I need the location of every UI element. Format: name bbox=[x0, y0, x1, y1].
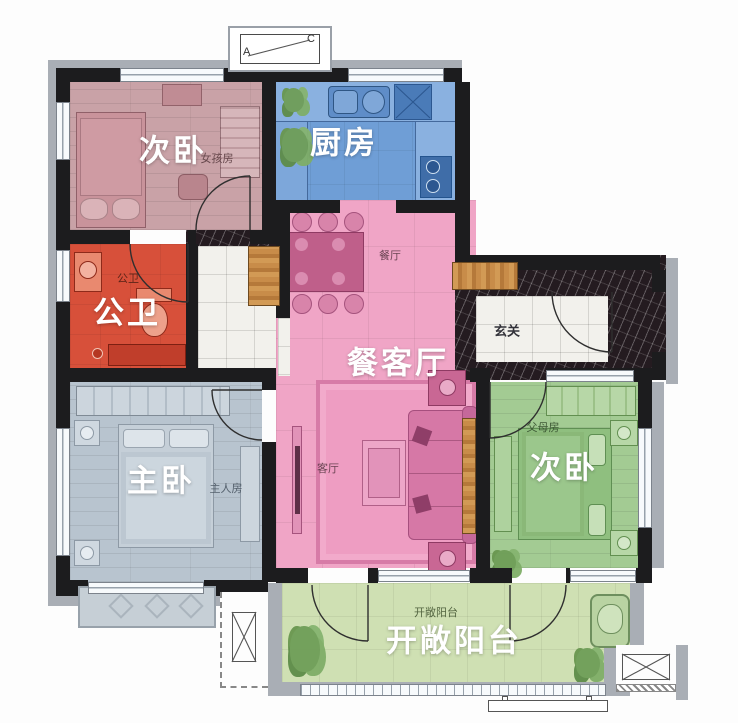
wall bbox=[56, 368, 276, 382]
bed-topleft-duvet bbox=[80, 118, 142, 196]
trim bbox=[268, 583, 282, 696]
dining-chair bbox=[292, 212, 312, 232]
tag-balcony: 开敞阳台 bbox=[414, 604, 458, 620]
nightstand-lamp bbox=[617, 536, 631, 550]
window bbox=[638, 428, 652, 528]
label-kitchen: 厨房 bbox=[310, 118, 378, 163]
balcony-railing bbox=[300, 684, 606, 696]
bed-master-pillow bbox=[169, 429, 209, 448]
exterior-rail-foot bbox=[502, 696, 508, 701]
wall bbox=[455, 82, 470, 270]
bed-topleft-pillow bbox=[112, 198, 140, 220]
wall bbox=[470, 368, 490, 382]
nightstand-lamp bbox=[80, 546, 94, 560]
dining-chair bbox=[318, 294, 338, 314]
ac-unit-left bbox=[232, 612, 256, 662]
kitchen-burner bbox=[426, 160, 440, 174]
label-dining-living: 餐客厅 bbox=[347, 338, 449, 383]
wall bbox=[262, 382, 276, 390]
label-bathroom: 公卫 bbox=[93, 288, 161, 333]
coffee-table-deco bbox=[368, 448, 400, 498]
ac-label-a: A bbox=[243, 46, 250, 58]
kitchen-plant bbox=[284, 88, 304, 112]
kitchen-burner bbox=[426, 179, 440, 193]
wall bbox=[56, 230, 130, 244]
tag-living: 客厅 bbox=[317, 460, 339, 476]
bed-master-pillow bbox=[123, 429, 165, 448]
wall bbox=[188, 230, 196, 244]
dining-plate bbox=[295, 238, 308, 251]
balcony-basin-bowl bbox=[597, 604, 623, 634]
ac-unit-right bbox=[622, 654, 670, 680]
window bbox=[56, 250, 70, 302]
wall bbox=[638, 528, 652, 568]
tag-bathroom: 公卫 bbox=[117, 270, 139, 286]
floor-corridor-passage bbox=[278, 318, 290, 376]
dining-chair bbox=[318, 212, 338, 232]
tag-bedroom-topleft: 女孩房 bbox=[201, 150, 234, 166]
label-bedroom-right: 次卧 bbox=[530, 443, 598, 488]
trim bbox=[652, 382, 664, 568]
wardrobe-master bbox=[76, 386, 230, 416]
window bbox=[120, 68, 224, 82]
bench-right bbox=[494, 436, 512, 532]
wall bbox=[276, 568, 308, 583]
trim bbox=[676, 645, 688, 700]
label-master: 主卧 bbox=[127, 456, 195, 501]
tv bbox=[295, 446, 300, 514]
wall bbox=[262, 442, 276, 582]
stool-topleft bbox=[178, 174, 208, 200]
wall bbox=[652, 352, 666, 380]
tag-master: 主人房 bbox=[210, 480, 243, 496]
dining-plate bbox=[332, 272, 345, 285]
tag-bedroom-right: 父母房 bbox=[527, 419, 560, 435]
bed-topleft-pillow bbox=[80, 198, 108, 220]
kitchen-hob-corner bbox=[394, 84, 432, 120]
bed-right-pillow bbox=[588, 504, 606, 536]
window bbox=[546, 370, 634, 382]
dresser-master bbox=[240, 446, 260, 542]
label-balcony: 开敞阳台 bbox=[386, 616, 522, 661]
exterior-rail bbox=[488, 700, 608, 712]
wall bbox=[262, 82, 276, 230]
wall bbox=[476, 382, 490, 568]
corridor-cabinet-wood bbox=[248, 246, 280, 306]
end-table-lamp bbox=[439, 550, 456, 567]
bathroom-cabinet bbox=[108, 344, 186, 366]
kitchen-sink-bowl bbox=[362, 90, 385, 114]
label-bedroom-topleft: 次卧 bbox=[139, 126, 207, 171]
floorplan: A C 次卧 女孩房 厨房 公卫 公卫 餐客厅 餐厅 客厅 玄关 主卧 主人房 … bbox=[0, 0, 738, 723]
entry-shoe-cabinet-wood bbox=[452, 262, 518, 290]
ac-label-c: C bbox=[307, 33, 315, 45]
bathroom-basin bbox=[79, 261, 97, 279]
bathroom-drain bbox=[92, 348, 103, 359]
dining-plate bbox=[295, 272, 308, 285]
label-entry: 玄关 bbox=[494, 321, 520, 340]
living-console-wood bbox=[462, 418, 476, 534]
trim bbox=[48, 60, 56, 600]
balcony-plant bbox=[576, 648, 600, 678]
exterior-rail-foot bbox=[586, 696, 592, 701]
wardrobe-topleft bbox=[220, 106, 260, 178]
desk-topleft bbox=[162, 84, 202, 106]
dining-chair bbox=[344, 294, 364, 314]
wardrobe-right bbox=[546, 386, 636, 416]
wall bbox=[652, 270, 666, 292]
window bbox=[348, 68, 444, 82]
ac-platform-hatch bbox=[616, 684, 676, 692]
trim bbox=[666, 258, 678, 384]
nightstand-lamp bbox=[80, 426, 94, 440]
window bbox=[88, 582, 204, 594]
window bbox=[56, 102, 70, 160]
dining-chair bbox=[292, 294, 312, 314]
balcony-plant bbox=[290, 626, 320, 672]
wall bbox=[368, 568, 378, 583]
window bbox=[56, 428, 70, 556]
dining-plate bbox=[332, 238, 345, 251]
dining-chair bbox=[344, 212, 364, 232]
wall bbox=[636, 568, 652, 583]
kitchen-plant bbox=[282, 128, 308, 162]
window bbox=[570, 570, 636, 582]
nightstand-lamp bbox=[617, 426, 631, 440]
kitchen-sink-bowl bbox=[333, 90, 358, 114]
wall bbox=[186, 244, 198, 368]
wall bbox=[470, 568, 512, 583]
tag-dining: 餐厅 bbox=[379, 247, 401, 263]
wall bbox=[276, 200, 340, 213]
wall bbox=[250, 230, 276, 244]
window bbox=[378, 570, 470, 582]
wall bbox=[638, 382, 652, 428]
